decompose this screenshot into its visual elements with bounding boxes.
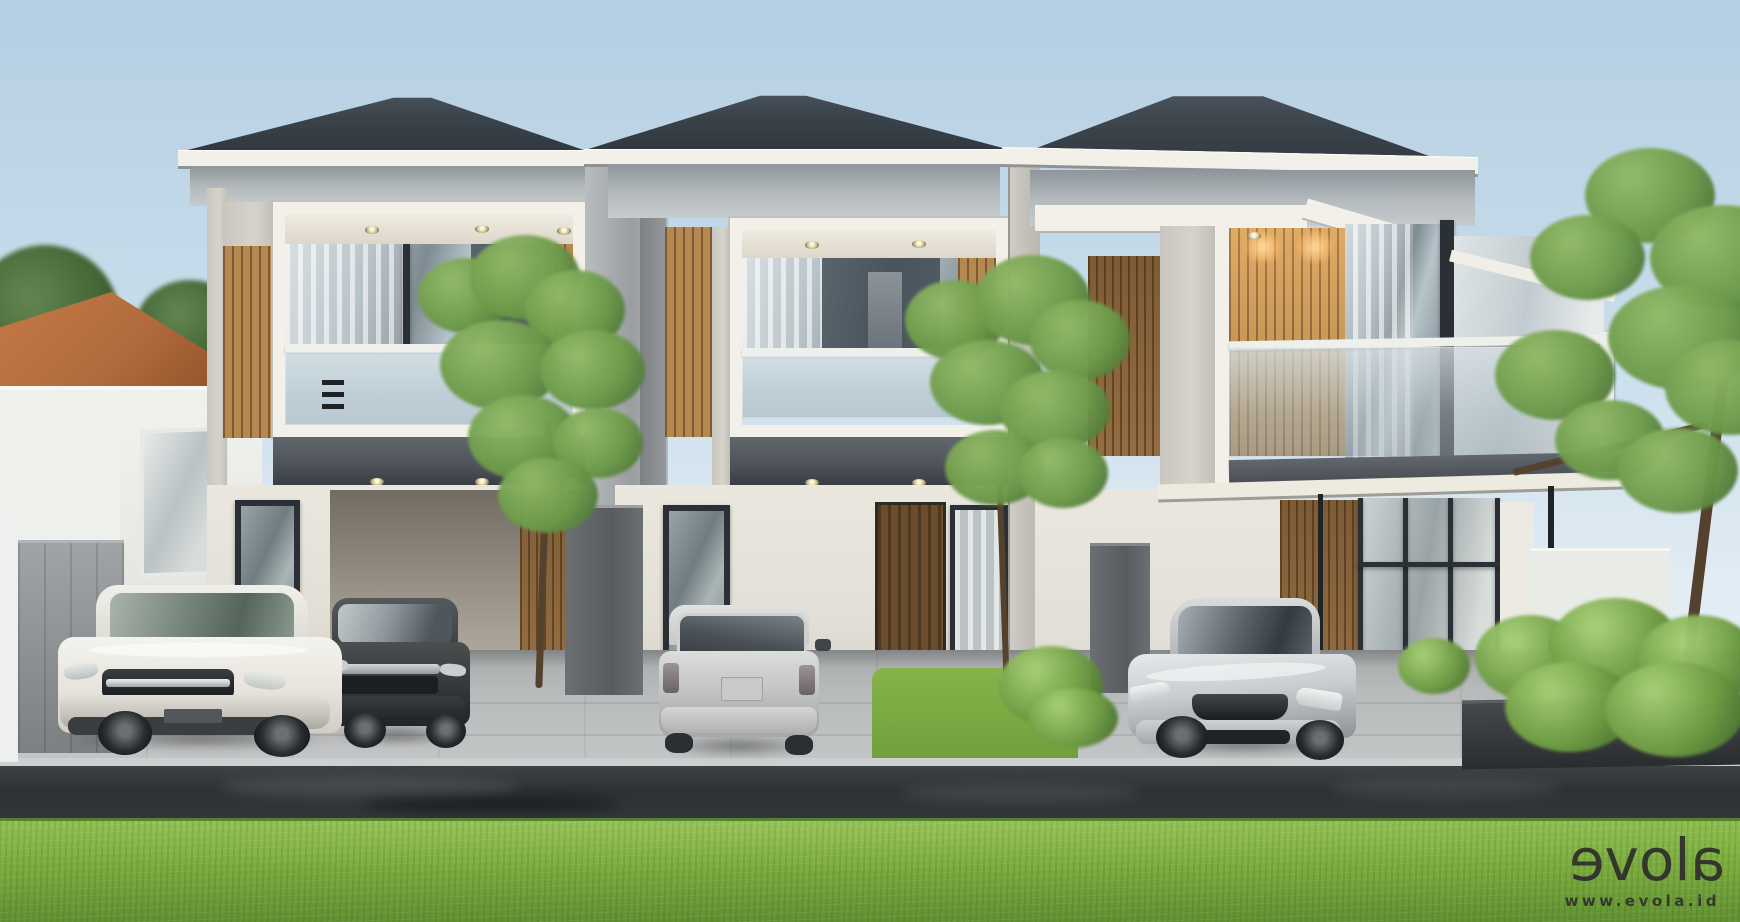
logo-letter: l [1674,831,1690,889]
unit1-louver-slat [322,404,344,409]
unit1-downlight [475,225,489,233]
tall-tree-foliage [1530,215,1645,300]
unit1-timber-cladding [223,246,275,438]
unit2-balcony-soffit [742,230,996,258]
shrub [1028,688,1118,748]
unit1-sheer-curtain [285,244,403,344]
car-wheel [426,714,466,748]
tree-foliage [1018,438,1108,508]
car-wheel [344,712,386,748]
car-grille [1192,694,1288,720]
car-windshield [338,604,452,644]
car-side-mirror [815,639,831,651]
unit3-downlight [1247,232,1261,240]
wet-reflection [220,776,520,798]
unit2-parapet [608,164,1000,218]
logo-letter: v [1605,831,1639,889]
wet-reflection [900,784,1140,802]
street-asphalt [0,766,1740,822]
unit1-window-mullion [403,244,410,344]
car-wheel [665,733,693,753]
car-white-suv [58,585,348,755]
car-wheel [1296,720,1344,760]
brand-logo: evola [1569,831,1726,889]
car-wheel [254,715,310,757]
car-license-plate [721,677,763,701]
unit2-downlight [805,241,819,249]
unit2-hip-roof [580,85,1015,157]
unit1-hip-roof [175,88,595,158]
unit1-downlight [557,227,571,235]
tall-tree-foliage [1618,428,1738,513]
puddle-shadow [360,796,620,812]
wet-reflection [1330,778,1560,798]
brand-url: www.evola.id [1565,892,1720,910]
unit1-louver-slat [322,380,344,385]
logo-letter: o [1639,831,1675,889]
unit2-interior-door-hint [868,272,902,348]
tree-foliage [540,330,645,410]
car-windshield [1178,606,1312,656]
unit2-downlight [912,240,926,248]
car-taillight [663,663,679,693]
car-wheel [98,711,152,755]
car-taillight [799,665,815,695]
render-canvas: evola www.evola.id [0,0,1740,922]
tree-foliage [1030,300,1130,380]
car-wheel [1156,716,1208,758]
car-windshield [110,593,294,641]
car-grille-bar [336,664,440,674]
unit1-parapet [190,166,585,206]
unit3-wall-washer-light [1295,232,1335,262]
shrub [1605,662,1740,757]
logo-letter: e [1569,831,1605,889]
car-silver-sedan [1128,598,1360,760]
car-license-plate [164,709,222,723]
logo-letter: a [1690,831,1726,889]
unit1-downlight [365,226,379,234]
unit3-glass-transom [1358,562,1500,567]
unit2-timber-cladding-left [665,227,712,437]
car-silver-hatchback [655,605,835,760]
front-lawn [0,818,1740,922]
car-wheel [785,735,813,755]
shrub [1398,638,1470,694]
left-wall-end [0,500,18,762]
car-grille-chrome [106,679,230,687]
watermark: evola www.evola.id [1565,831,1726,910]
car-grille [338,676,438,694]
tree-foliage [498,458,598,533]
car-hood-highlight [88,643,308,657]
unit1-louver-slat [322,392,344,397]
car-bumper [661,707,817,733]
unit2-concrete-strip [712,227,730,527]
divider-fence-1 [565,505,643,695]
unit1-upper-band [223,202,275,250]
unit2-sheer-curtain [742,258,822,348]
